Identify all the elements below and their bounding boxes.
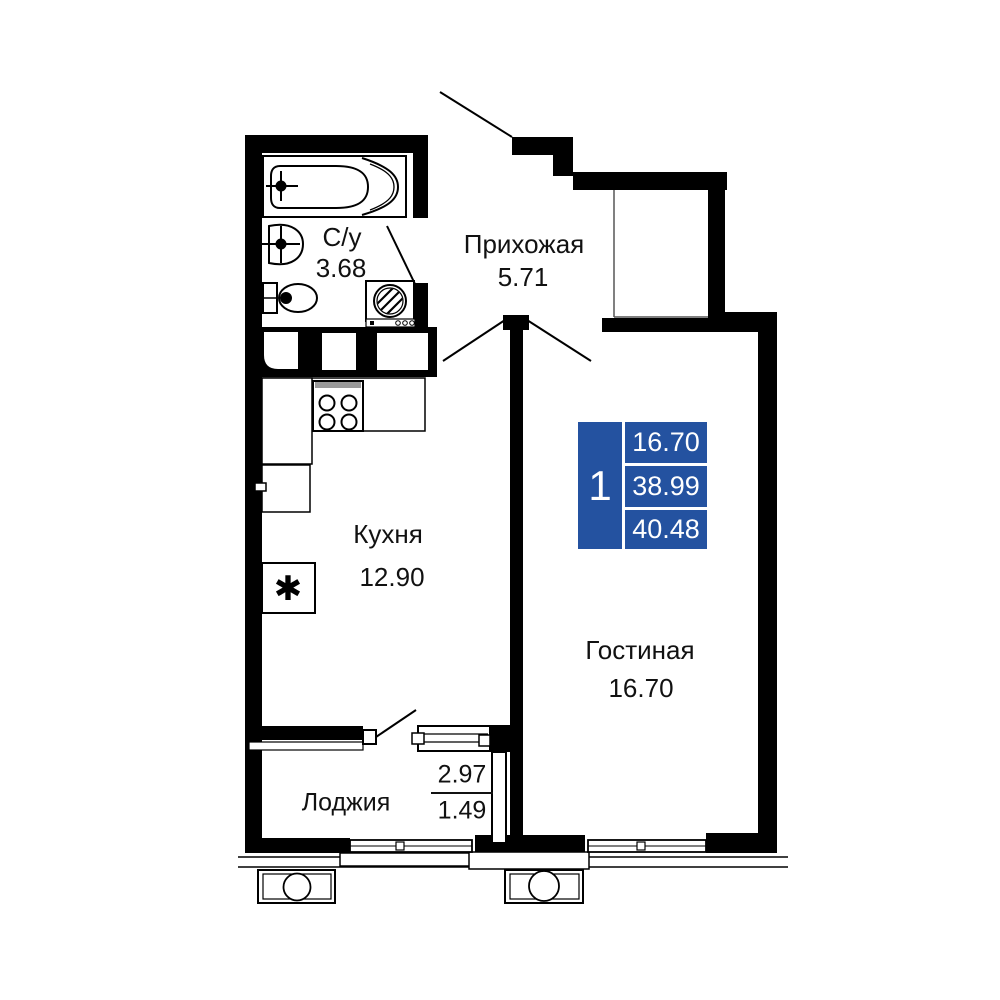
washing-machine-icon: [366, 281, 415, 327]
floor-plan-drawing: [0, 0, 1000, 1000]
kitchen-label: Кухня: [353, 521, 423, 547]
bathroom-door: [387, 226, 415, 284]
kitchen-area: 12.90: [359, 564, 424, 590]
window-sills: [340, 852, 589, 869]
stove-icon: [313, 381, 363, 431]
badge-rooms-count: 1: [578, 422, 622, 549]
entrance-door: [440, 92, 512, 137]
exterior-unit-left: [258, 870, 335, 903]
badge-area-without-loggia: 38.99: [625, 466, 707, 507]
kitchen-sink-icon: [255, 465, 310, 512]
fridge-symbol: ✱: [274, 569, 303, 609]
loggia-sill-line: [249, 742, 363, 750]
loggia-fraction-line: [431, 792, 493, 794]
kitchen-balcony-window: [412, 726, 490, 751]
badge-total-area: 40.48: [625, 510, 707, 549]
loggia-area-counted: 1.49: [438, 799, 487, 824]
kitchen-wall-units: [262, 327, 437, 377]
balcony-door: [363, 710, 416, 744]
exterior-unit-right: [505, 870, 583, 903]
living-room-window: [588, 840, 706, 852]
living-room-area: 16.70: [608, 675, 673, 701]
loggia-bottom-window: [350, 840, 472, 852]
toilet-icon: [263, 283, 317, 313]
hallway-area: 5.71: [498, 264, 549, 290]
hallway-label: Прихожая: [464, 231, 584, 257]
washbasin-icon: [261, 225, 303, 264]
floor-plan: С/у 3.68 Прихожая 5.71 Кухня 12.90 Гости…: [0, 0, 1000, 1000]
badge-room-area: 16.70: [625, 422, 707, 463]
bathroom-area: 3.68: [316, 255, 367, 281]
bathtub-icon: [263, 156, 406, 217]
loggia-label: Лоджия: [302, 791, 391, 816]
loggia-area-full: 2.97: [438, 763, 487, 788]
living-room-label: Гостиная: [585, 637, 694, 663]
hallway-closet: [614, 190, 708, 317]
bathroom-label: С/у: [323, 224, 362, 250]
loggia-partition-wall: [492, 752, 506, 843]
